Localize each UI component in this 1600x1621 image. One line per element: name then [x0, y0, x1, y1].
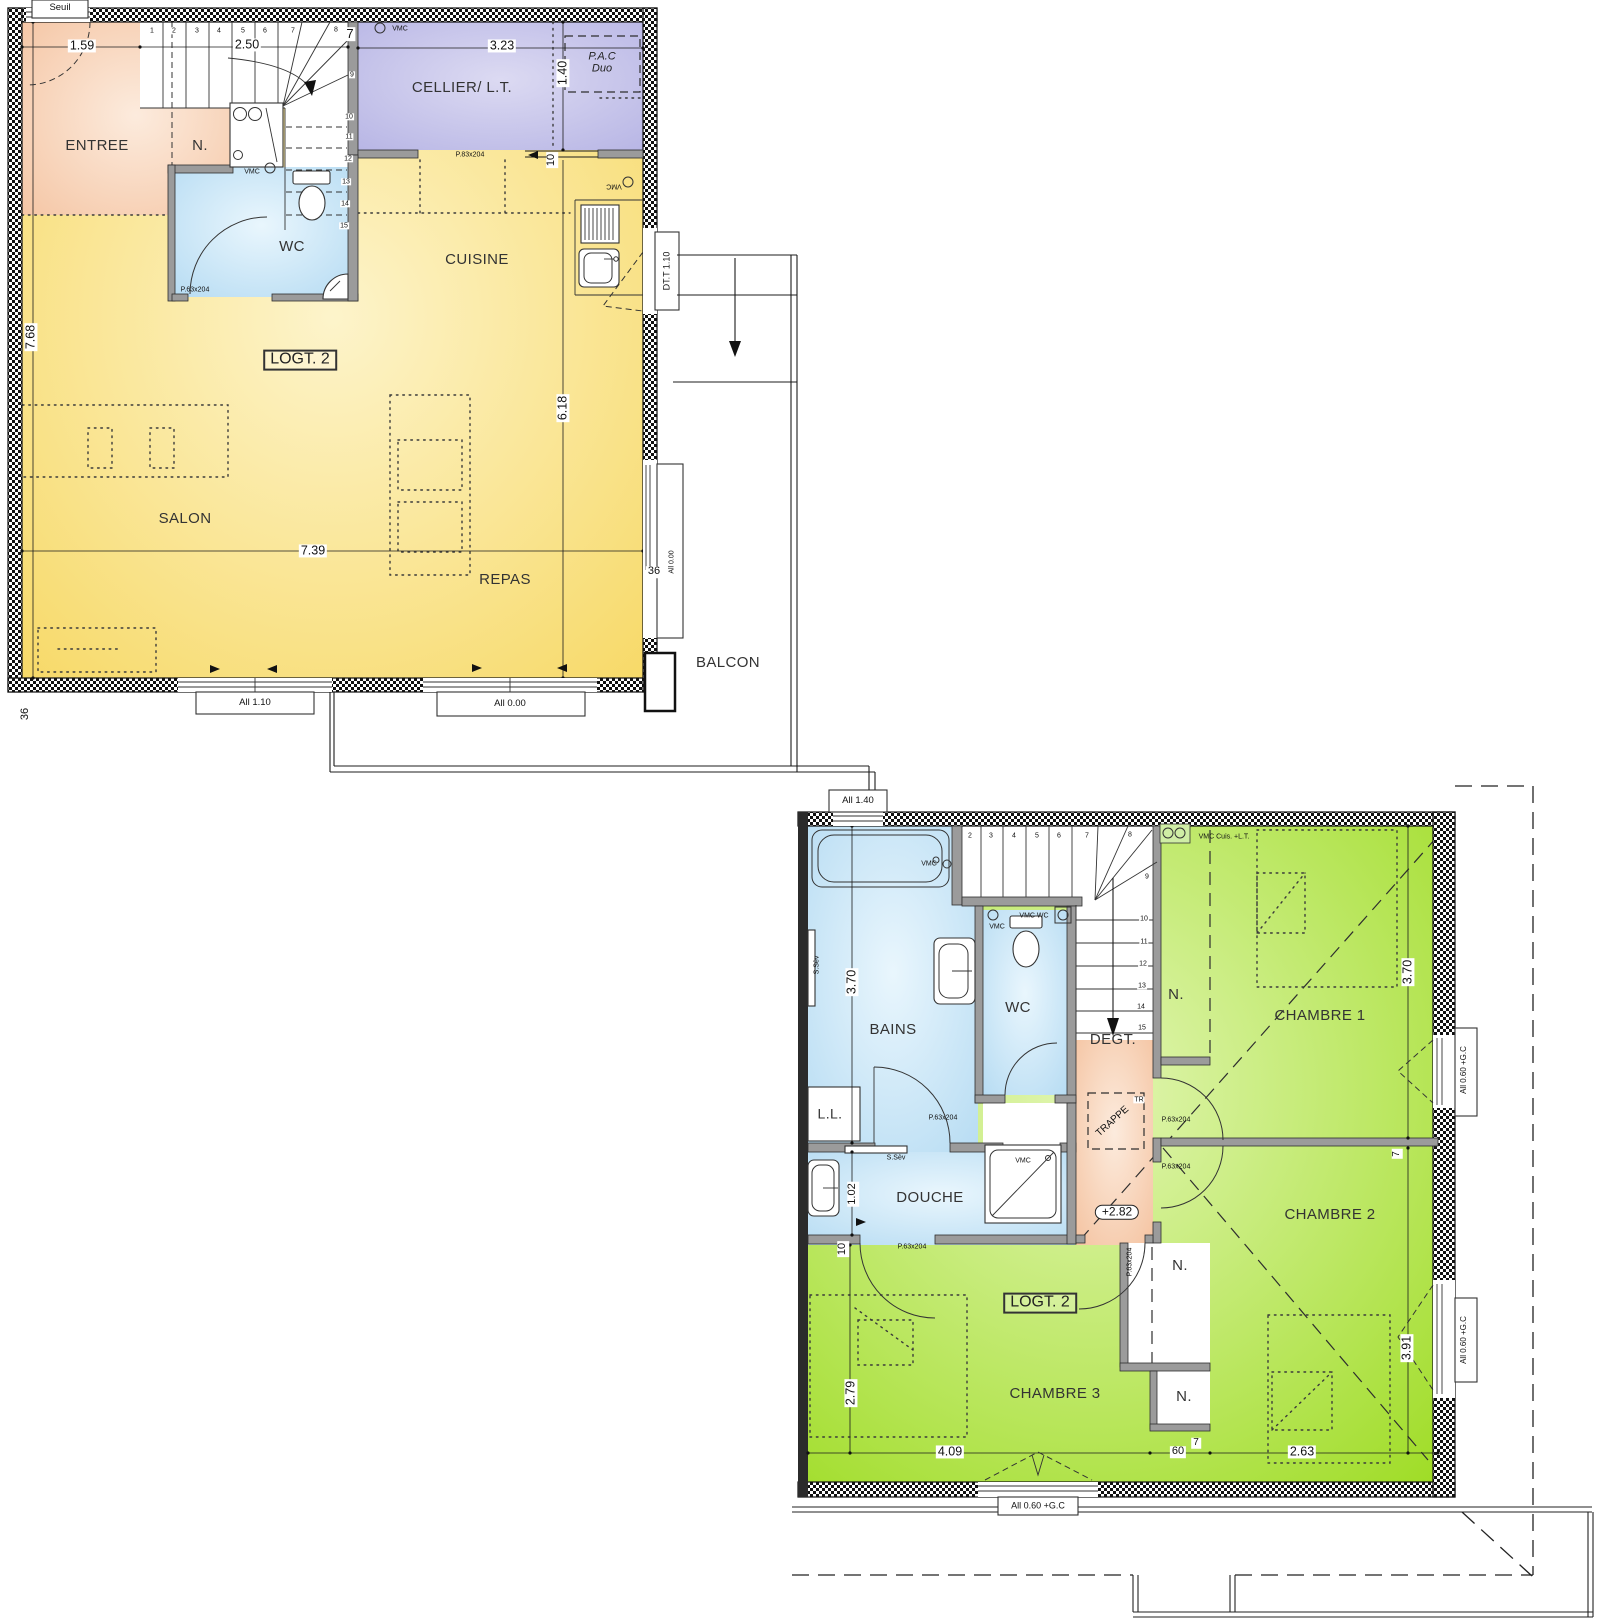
- window-box-right: [657, 464, 683, 638]
- toilet-bowl-floor2: [1013, 931, 1039, 967]
- room-wc1: [175, 167, 348, 297]
- window-box-all110: [196, 692, 314, 714]
- window-box-ch1: [1455, 1028, 1477, 1116]
- window-box-all000: [437, 692, 585, 716]
- door-box-dtt: [655, 232, 679, 310]
- window-box-ch3: [998, 1497, 1078, 1515]
- party-wall: [798, 812, 808, 1497]
- window-box-ch2: [1455, 1298, 1477, 1382]
- toilet-bowl-floor1: [299, 186, 325, 220]
- balcony-post: [645, 653, 675, 711]
- kitchen-sink: [579, 249, 619, 287]
- floor2-drawing: [792, 786, 1593, 1617]
- floor1-drawing: [8, 0, 875, 812]
- floorplan-svg: [0, 0, 1600, 1621]
- stair-floor2: [962, 826, 1157, 905]
- room-cellier: [358, 22, 643, 150]
- closet-ch3: [1157, 1371, 1210, 1425]
- toilet-tank-floor2: [1010, 916, 1042, 928]
- seuil-box: [32, 0, 88, 18]
- toilet-tank-floor1: [293, 171, 330, 184]
- radiator-douche: [845, 1146, 907, 1153]
- stair-floor1: [140, 22, 348, 108]
- closet-ch2: [1128, 1243, 1210, 1363]
- exterior-stair-arrow: [729, 341, 741, 357]
- entry-closet: [230, 103, 283, 167]
- radiator-bains: [808, 930, 815, 1006]
- window-box-all140: [829, 790, 887, 812]
- floorplan-canvas: Seuil1.592.5073.23VMCP.A.C Duo1.40CELLIE…: [0, 0, 1600, 1621]
